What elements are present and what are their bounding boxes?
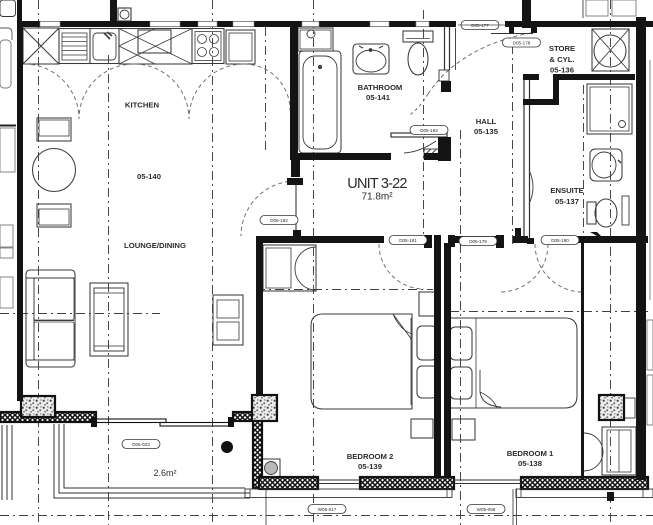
svg-text:ENSUITE: ENSUITE [550, 186, 583, 195]
svg-text:D05-181: D05-181 [399, 238, 417, 243]
svg-text:05-137: 05-137 [555, 197, 579, 206]
svg-text:& CYL.: & CYL. [549, 55, 574, 64]
svg-text:71.8m²: 71.8m² [361, 192, 393, 203]
svg-text:D05-177: D05-177 [471, 23, 489, 28]
svg-text:BATHROOM: BATHROOM [358, 83, 403, 92]
svg-text:LOUNGE/DINING: LOUNGE/DINING [124, 241, 186, 250]
svg-text:W05-056: W05-056 [477, 507, 496, 512]
svg-text:UNIT 3-22: UNIT 3-22 [347, 176, 407, 192]
svg-text:05-141: 05-141 [366, 93, 391, 102]
svg-text:W05-017: W05-017 [318, 507, 337, 512]
svg-text:HALL: HALL [476, 117, 497, 126]
svg-text:KITCHEN: KITCHEN [125, 101, 160, 110]
svg-text:05-135: 05-135 [474, 127, 499, 136]
svg-text:D05-179: D05-179 [469, 239, 487, 244]
svg-text:05-140: 05-140 [137, 172, 161, 181]
svg-text:D05-182: D05-182 [270, 218, 288, 223]
svg-text:05-138: 05-138 [518, 459, 543, 468]
svg-text:05-136: 05-136 [550, 66, 574, 75]
svg-text:D05-183: D05-183 [420, 128, 438, 133]
svg-text:BEDROOM 2: BEDROOM 2 [347, 452, 394, 461]
svg-text:D05-180: D05-180 [551, 238, 569, 243]
svg-text:D05-023: D05-023 [132, 442, 150, 447]
svg-text:D05-178: D05-178 [513, 41, 531, 46]
svg-text:BEDROOM 1: BEDROOM 1 [507, 449, 554, 458]
svg-text:STORE: STORE [549, 44, 575, 53]
svg-text:05-139: 05-139 [358, 462, 382, 471]
svg-text:2.6m²: 2.6m² [153, 468, 176, 478]
